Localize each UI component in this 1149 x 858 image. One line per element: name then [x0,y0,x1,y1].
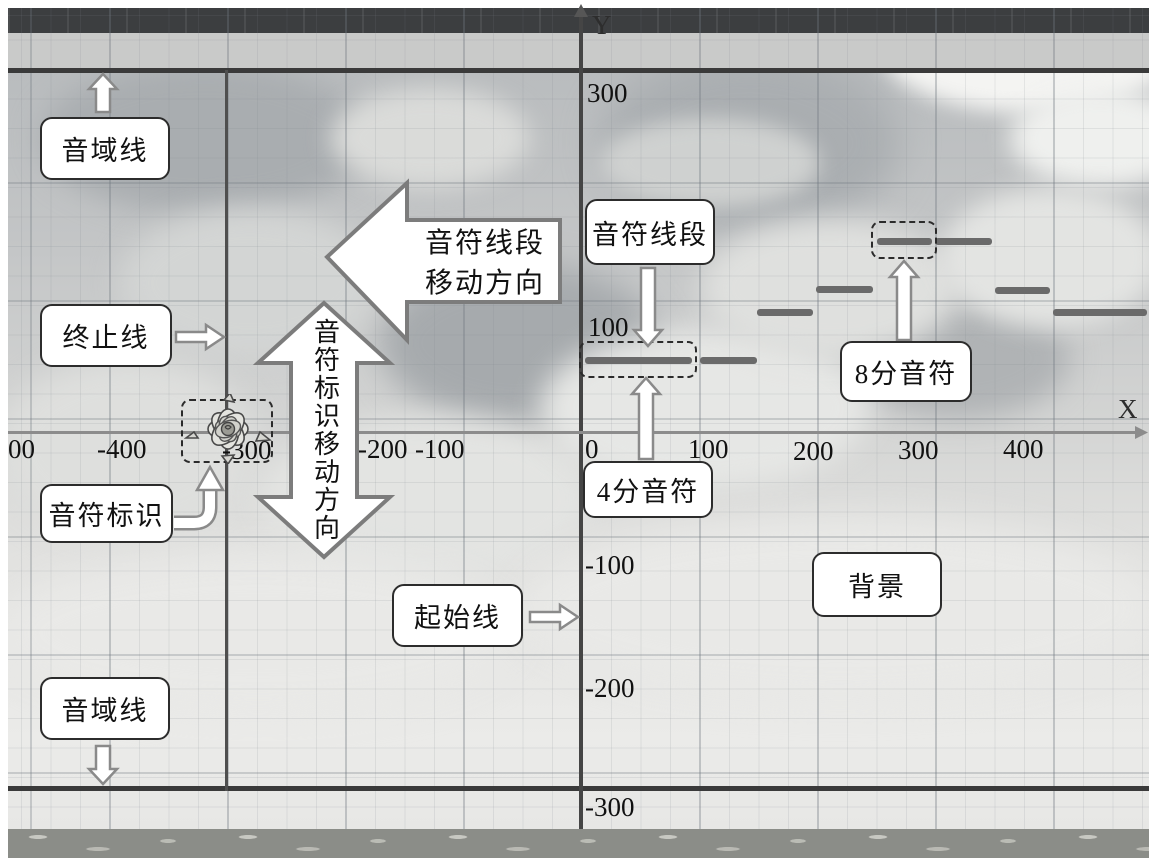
figure-canvas: 00 -400 -300 -200 -100 0 100 200 300 400… [0,0,1149,858]
note-segments-layer [0,0,1149,858]
segment-move-direction-text: 音符线段 移动方向 [412,221,558,301]
note-marker-flower [184,394,272,464]
quarter-note-highlight-box [579,341,697,378]
segment-move-line2: 移动方向 [425,261,545,301]
note-segment [995,287,1050,294]
callout-range-line-top: 音域线 [40,117,170,180]
callout-background: 背景 [812,552,942,617]
callout-note-marker: 音符标识 [40,484,173,543]
callout-start-line: 起始线 [392,584,523,647]
callout-range-line-bottom: 音域线 [40,677,170,740]
callout-quarter-note: 4分音符 [583,461,713,518]
marker-move-direction-text: 音符标识移动方向 [306,306,344,554]
eighth-note-highlight-box [871,221,937,259]
note-segment [816,286,873,293]
segment-move-line1: 音符线段 [425,221,545,261]
note-segment [700,357,757,364]
callout-end-line: 终止线 [40,304,172,367]
callout-eighth-note: 8分音符 [840,341,972,402]
callout-note-segment: 音符线段 [585,199,715,265]
note-segment [757,309,813,316]
note-segment [935,238,992,245]
note-segment [1053,309,1147,316]
